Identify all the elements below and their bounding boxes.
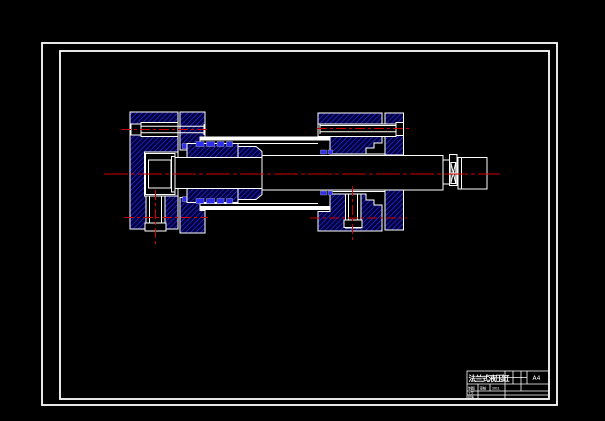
drawing-title: 法兰式液压缸 (469, 373, 510, 383)
rod-main-section (262, 156, 443, 191)
right-flange-plate-lower (385, 190, 404, 230)
tb-row2-c2: 审核 (480, 386, 487, 391)
tb-row2-c1: 制图 (468, 386, 475, 391)
piston-seal (207, 199, 215, 204)
tb-row2-c3: 2011 (492, 387, 500, 391)
seal-chip (328, 191, 333, 195)
tube-wall-bottom (200, 206, 330, 210)
seal-chip (321, 150, 327, 154)
outer-border (42, 43, 557, 405)
rod-left-section (175, 158, 262, 189)
piston-seal (196, 199, 204, 204)
piston-seal (196, 142, 204, 147)
piston-seal (217, 142, 224, 147)
piston-seal (227, 199, 233, 204)
cad-drawing: 法兰式液压缸 A4 制图 审核 2011 工艺 批准 (0, 0, 605, 421)
piston-seal (217, 199, 224, 204)
rod-end-nut (458, 158, 487, 190)
piston-rod (175, 155, 487, 191)
rod-neck (443, 160, 450, 184)
piston-seal (207, 142, 215, 147)
piston-seal (227, 142, 233, 147)
cad-viewport[interactable]: 法兰式液压缸 A4 制图 审核 2011 工艺 批准 (0, 0, 605, 421)
piston-step-lower (238, 189, 262, 200)
title-block: 法兰式液压缸 A4 制图 审核 2011 工艺 批准 (467, 371, 549, 399)
tube-wall-top (200, 137, 330, 141)
sheet-frame (42, 43, 557, 405)
piston-step-upper (238, 147, 262, 158)
seal-chip (328, 150, 333, 154)
seal-chip (321, 191, 327, 195)
sheet-size-label: A4 (533, 375, 541, 382)
